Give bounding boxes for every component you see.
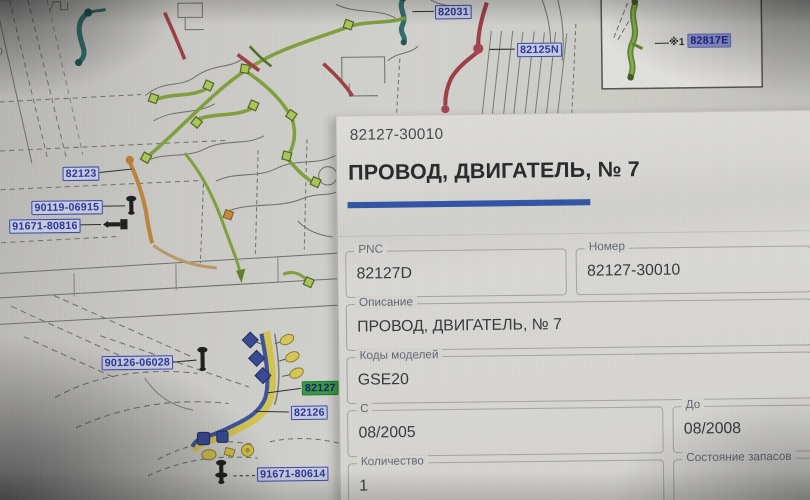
field-date-from-label: С xyxy=(356,403,373,415)
green-connectors xyxy=(139,19,357,289)
part-number-header: 82127-30010 xyxy=(350,125,444,143)
part-title: ПРОВОД, ДВИГАТЕЛЬ, № 7 xyxy=(348,158,640,186)
field-description[interactable]: Описание ПРОВОД, ДВИГАТЕЛЬ, № 7 xyxy=(346,298,810,351)
field-pnc-label: PNC xyxy=(354,243,387,256)
part-label-91671-80614[interactable]: 91671-80614 xyxy=(257,467,329,482)
field-model-codes-label: Коды моделей xyxy=(355,349,442,362)
part-fields: PNC 82127D Номер 82127-30010 Описание ПР… xyxy=(345,245,810,500)
part-label-90119-06915[interactable]: 90119-06915 xyxy=(31,200,102,215)
section-divider xyxy=(338,230,810,237)
part-label-82125N[interactable]: 82125N xyxy=(517,42,562,57)
field-stock[interactable]: Состояние запасов xyxy=(673,458,810,500)
field-description-label: Описание xyxy=(355,296,417,309)
field-date-from-value: 08/2005 xyxy=(348,407,663,442)
part-details-panel: 82127-30010 ПРОВОД, ДВИГАТЕЛЬ, № 7 PNC 8… xyxy=(335,110,810,500)
field-date-to[interactable]: До 08/2008 xyxy=(672,405,810,454)
field-stock-label: Состояние запасов xyxy=(682,451,796,465)
field-number[interactable]: Номер 82127-30010 xyxy=(576,245,810,295)
parts-catalog-app: 82031 82125N 82123 90119-06915 91671-808… xyxy=(0,0,810,500)
field-model-codes[interactable]: Коды моделей GSE20 xyxy=(346,352,810,405)
part-label-91671-80816[interactable]: 91671-80816 xyxy=(9,219,81,234)
field-number-label: Номер xyxy=(585,241,629,254)
field-quantity[interactable]: Количество 1 xyxy=(348,459,665,500)
field-quantity-label: Количество xyxy=(357,455,428,468)
callout-box: ※1 82817E xyxy=(601,0,762,89)
callout-ref-note: ※1 xyxy=(669,37,685,48)
part-label-82123[interactable]: 82123 xyxy=(63,166,100,181)
part-label-82817E[interactable]: 82817E xyxy=(687,33,731,48)
photographed-screen: 82031 82125N 82123 90119-06915 91671-808… xyxy=(0,0,810,500)
field-pnc[interactable]: PNC 82127D xyxy=(345,248,567,298)
field-date-from[interactable]: С 08/2005 xyxy=(347,406,664,457)
part-label-82126[interactable]: 82126 xyxy=(291,405,328,420)
title-underline xyxy=(348,199,591,208)
part-label-82127-selected[interactable]: 82127 xyxy=(302,381,339,396)
part-label-82031[interactable]: 82031 xyxy=(435,5,472,20)
red-wires xyxy=(165,3,489,117)
part-label-90126-06028[interactable]: 90126-06028 xyxy=(102,355,174,370)
field-date-to-label: До xyxy=(681,399,704,412)
